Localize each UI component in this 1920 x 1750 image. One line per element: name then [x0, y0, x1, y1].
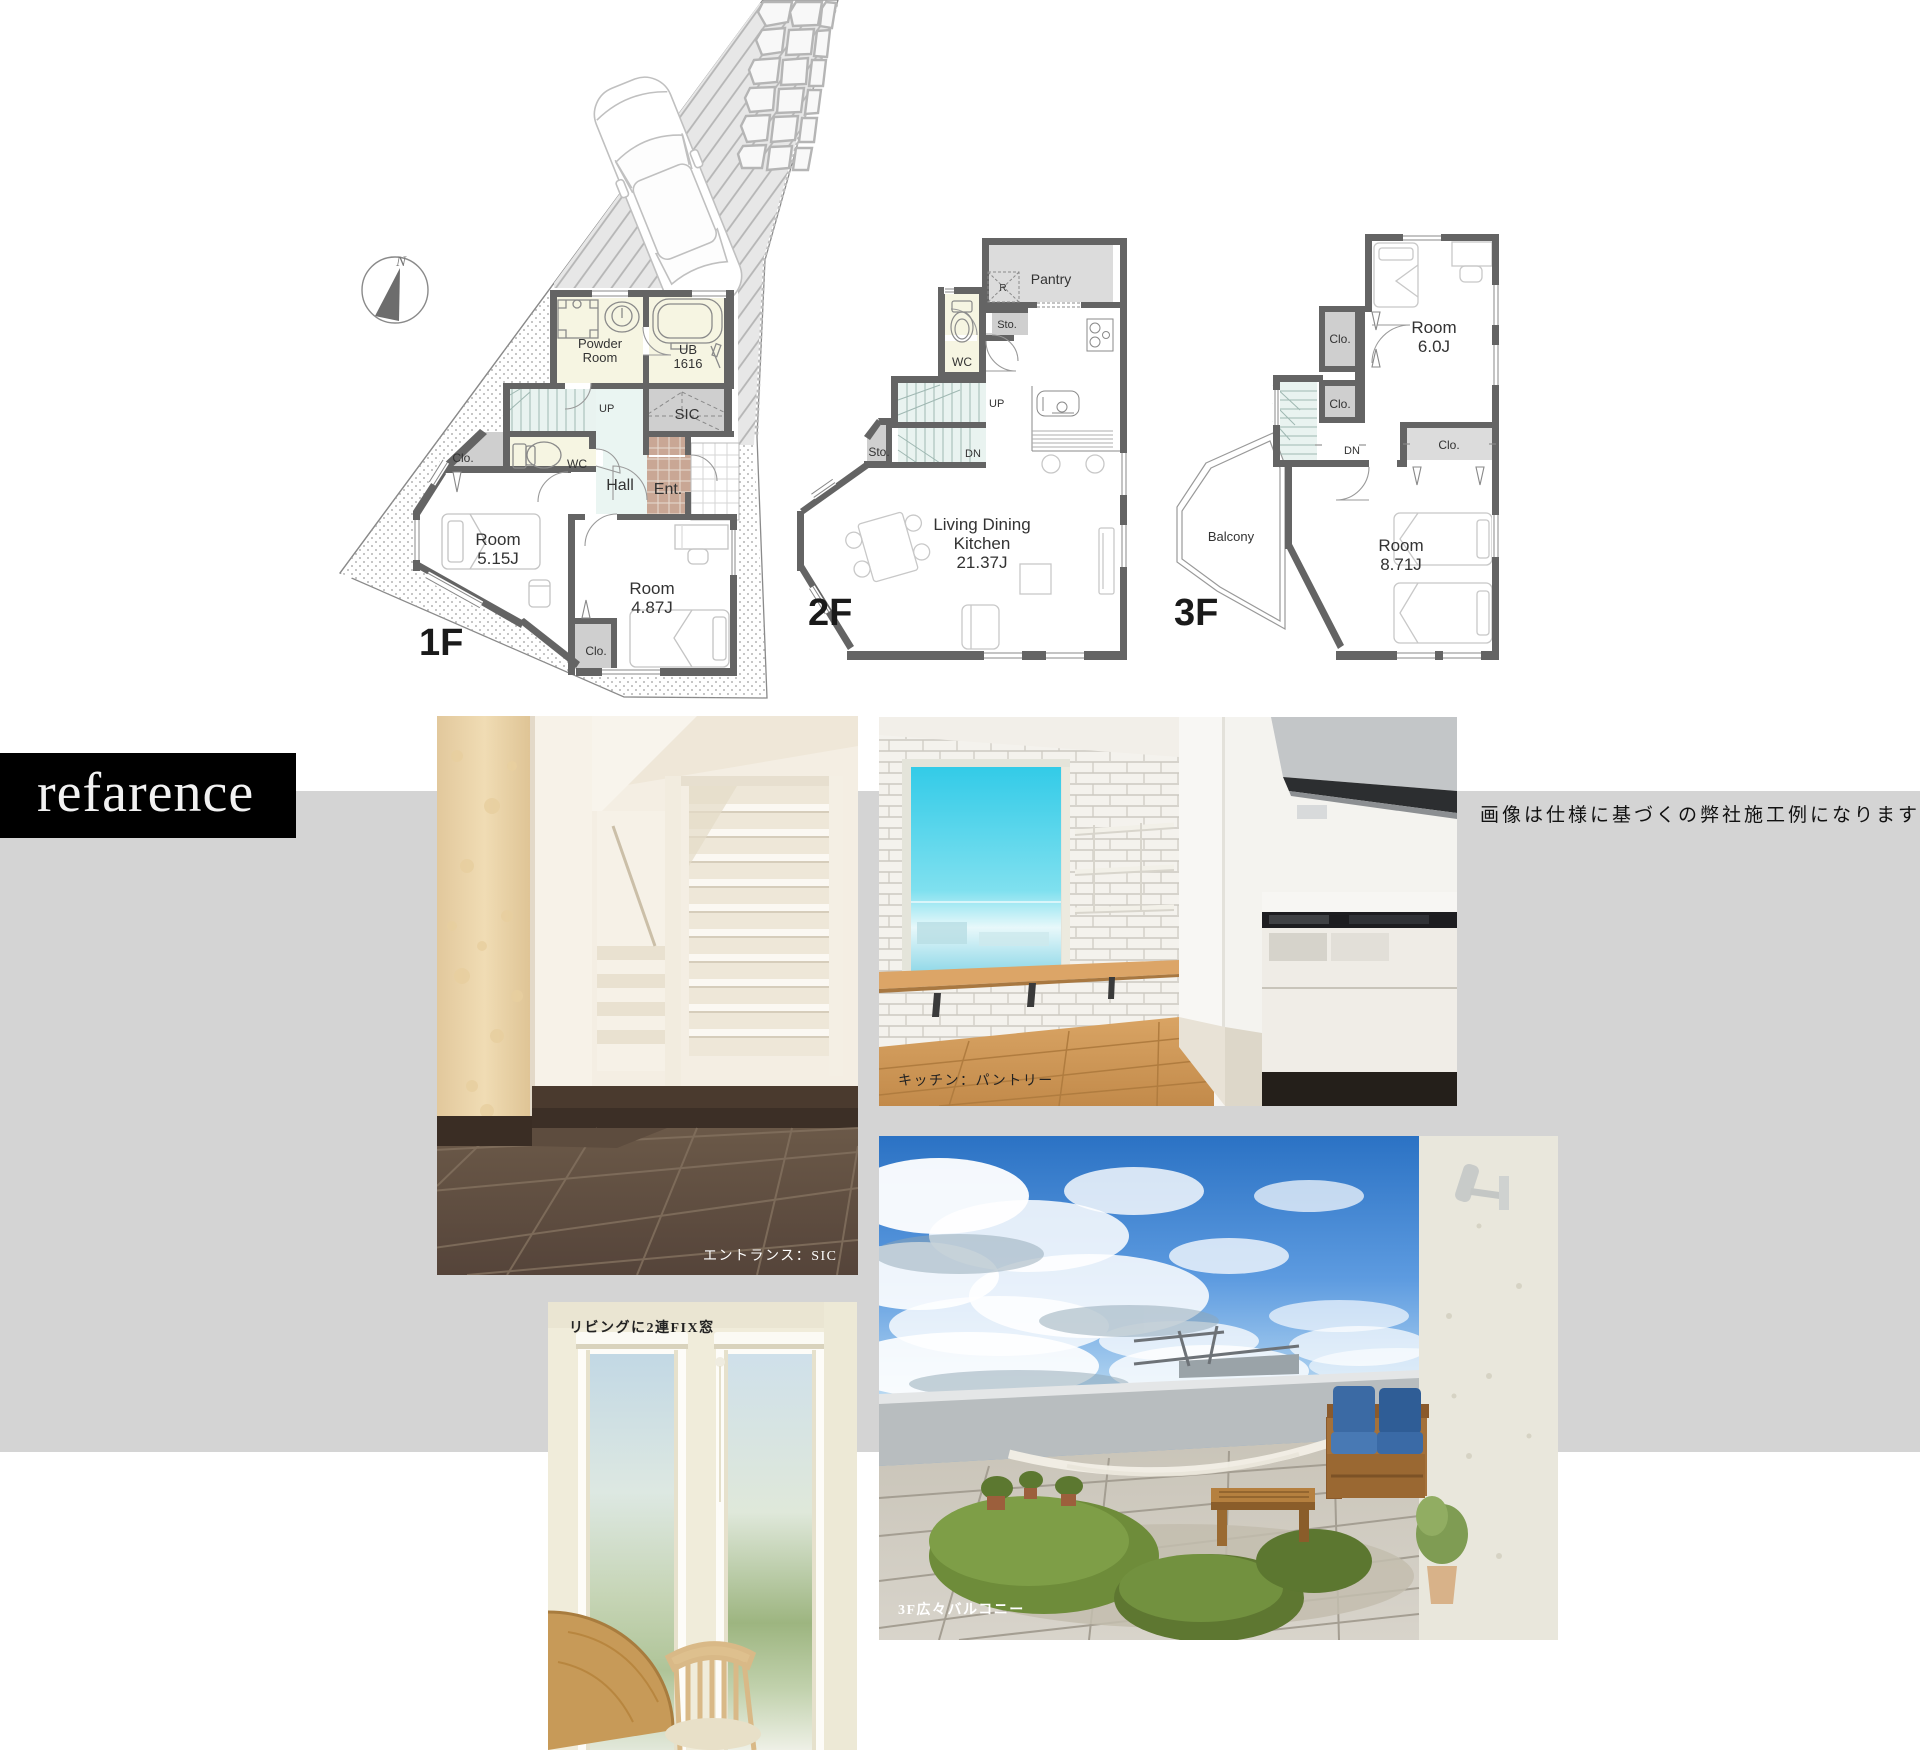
svg-text:8.71J: 8.71J	[1380, 555, 1422, 574]
svg-text:Room: Room	[583, 350, 618, 365]
svg-text:Room: Room	[475, 530, 520, 549]
svg-text:Clo.: Clo.	[1438, 438, 1459, 452]
svg-text:Pantry: Pantry	[1031, 271, 1071, 287]
svg-text:N: N	[395, 254, 407, 270]
svg-text:1616: 1616	[674, 356, 703, 371]
svg-text:Room: Room	[1411, 318, 1456, 337]
svg-text:4.87J: 4.87J	[631, 598, 673, 617]
svg-text:Room: Room	[1378, 536, 1423, 555]
svg-text:1F: 1F	[419, 622, 463, 664]
svg-text:Clo.: Clo.	[1329, 332, 1350, 346]
svg-text:Clo.: Clo.	[585, 644, 606, 658]
svg-text:WC: WC	[952, 355, 972, 369]
svg-text:Living Dining: Living Dining	[933, 515, 1030, 534]
svg-text:Balcony: Balcony	[1208, 529, 1255, 544]
svg-text:Room: Room	[629, 579, 674, 598]
svg-text:UP: UP	[599, 403, 614, 415]
svg-text:5.15J: 5.15J	[477, 549, 519, 568]
svg-text:UP: UP	[989, 398, 1004, 410]
svg-text:Hall: Hall	[606, 477, 634, 494]
svg-text:R: R	[999, 283, 1006, 294]
svg-text:UB: UB	[679, 342, 697, 357]
svg-text:WC: WC	[567, 457, 587, 471]
svg-text:Sto.: Sto.	[997, 319, 1017, 331]
svg-text:Sto.: Sto.	[868, 445, 889, 459]
svg-text:Kitchen: Kitchen	[954, 534, 1011, 553]
svg-text:Clo.: Clo.	[1329, 397, 1350, 411]
svg-text:DN: DN	[965, 448, 981, 460]
svg-text:Ent.: Ent.	[654, 481, 682, 498]
svg-text:6.0J: 6.0J	[1418, 337, 1450, 356]
svg-text:2F: 2F	[808, 592, 852, 634]
svg-text:SIC: SIC	[674, 406, 699, 423]
svg-text:Powder: Powder	[578, 336, 623, 351]
svg-text:3F: 3F	[1174, 592, 1218, 634]
svg-text:DN: DN	[1344, 445, 1360, 457]
svg-text:21.37J: 21.37J	[956, 553, 1007, 572]
svg-text:Clo.: Clo.	[452, 451, 473, 465]
